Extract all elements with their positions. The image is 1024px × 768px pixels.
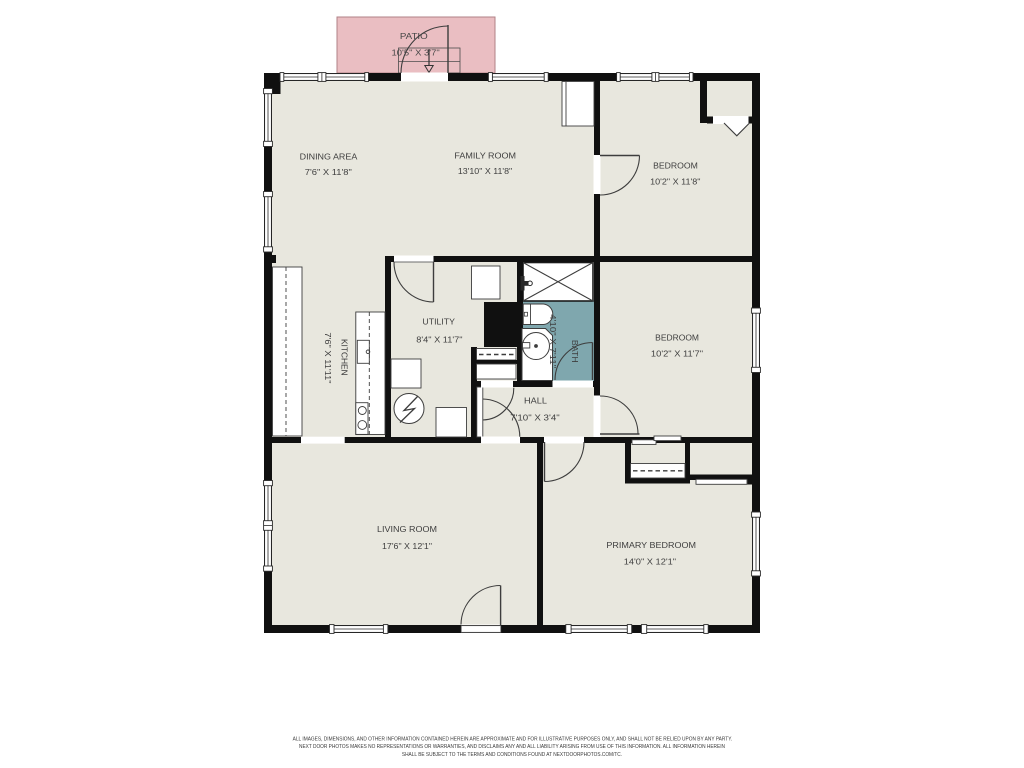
svg-text:SHALL BE SUBJECT TO THE TERMS: SHALL BE SUBJECT TO THE TERMS AND CONDIT… [402, 752, 622, 758]
svg-text:4'10" X 7'11": 4'10" X 7'11" [548, 314, 558, 368]
svg-text:KITCHEN: KITCHEN [340, 339, 350, 376]
svg-text:7'6" X 11'11": 7'6" X 11'11" [323, 332, 333, 383]
svg-text:DINING AREA: DINING AREA [300, 152, 358, 162]
svg-text:BEDROOM: BEDROOM [653, 161, 698, 171]
svg-text:HALL: HALL [524, 396, 547, 406]
svg-text:NEXT DOOR PHOTOS MAKES NO REPR: NEXT DOOR PHOTOS MAKES NO REPRESENTATION… [299, 744, 725, 750]
svg-text:BATH: BATH [570, 340, 580, 363]
svg-text:7'10" X 3'4": 7'10" X 3'4" [510, 413, 560, 423]
svg-text:14'0" X 12'1": 14'0" X 12'1" [624, 557, 676, 567]
svg-text:10'5" X 3'7": 10'5" X 3'7" [392, 47, 440, 57]
svg-text:LIVING ROOM: LIVING ROOM [377, 524, 437, 534]
svg-text:FAMILY ROOM: FAMILY ROOM [454, 151, 516, 161]
svg-text:10'2" X 11'7": 10'2" X 11'7" [651, 349, 703, 359]
svg-text:UTILITY: UTILITY [422, 317, 455, 327]
svg-text:8'4" X 11'7": 8'4" X 11'7" [416, 335, 462, 345]
svg-text:PRIMARY BEDROOM: PRIMARY BEDROOM [606, 540, 696, 550]
svg-text:13'10" X 11'8": 13'10" X 11'8" [458, 166, 512, 176]
svg-text:ALL IMAGES, DIMENSIONS, AND OT: ALL IMAGES, DIMENSIONS, AND OTHER INFORM… [293, 736, 733, 742]
svg-text:10'2" X 11'8": 10'2" X 11'8" [650, 177, 700, 187]
svg-text:BEDROOM: BEDROOM [655, 333, 699, 343]
svg-text:7'6" X 11'8": 7'6" X 11'8" [305, 167, 352, 177]
svg-text:17'6" X 12'1": 17'6" X 12'1" [382, 541, 432, 551]
